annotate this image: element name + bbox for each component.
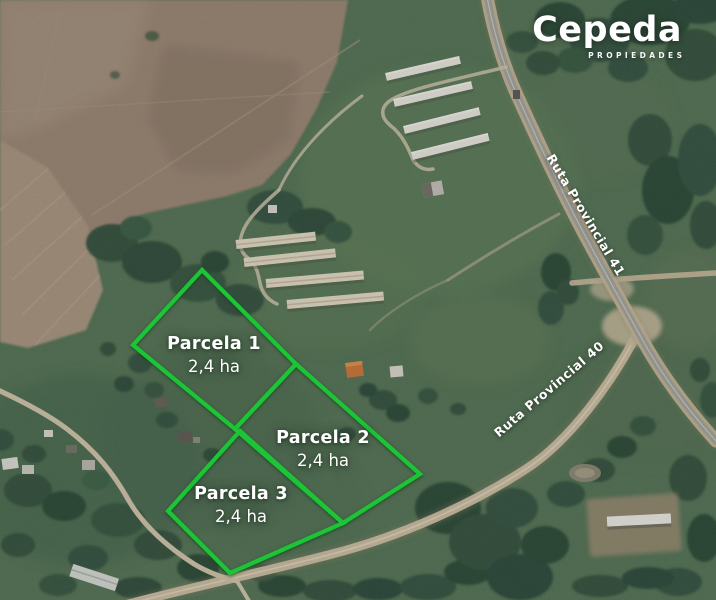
parcela-2-area: 2,4 ha — [276, 450, 370, 471]
parcela-3-label: Parcela 3 2,4 ha — [194, 483, 288, 527]
parcela-1-area: 2,4 ha — [167, 356, 261, 377]
listing-map: Cepeda PROPIEDADES Parcela 1 2,4 ha Parc… — [0, 0, 716, 600]
brand-name: Cepeda — [532, 13, 682, 48]
grain-overlay-light — [0, 0, 716, 600]
brand-tagline: PROPIEDADES — [532, 51, 685, 60]
satellite-map — [0, 0, 716, 600]
parcela-3-name: Parcela 3 — [194, 483, 288, 506]
parcela-2-name: Parcela 2 — [276, 427, 370, 450]
brand-logo: Cepeda PROPIEDADES — [532, 13, 682, 60]
parcela-3-area: 2,4 ha — [194, 506, 288, 527]
parcela-1-name: Parcela 1 — [167, 333, 261, 356]
parcela-2-label: Parcela 2 2,4 ha — [276, 427, 370, 471]
parcela-1-label: Parcela 1 2,4 ha — [167, 333, 261, 377]
